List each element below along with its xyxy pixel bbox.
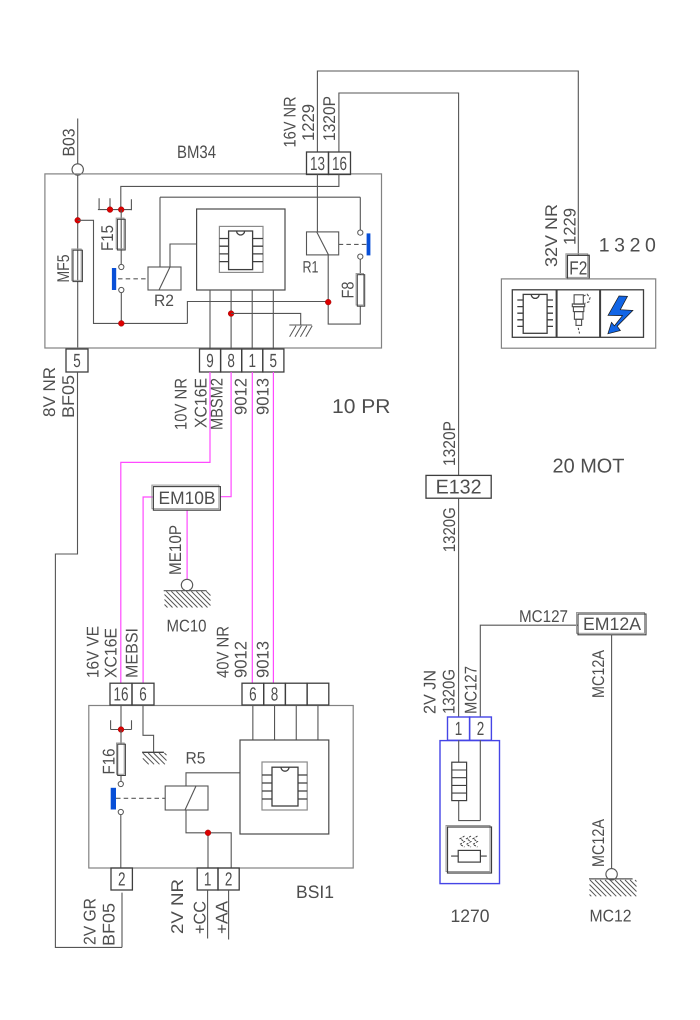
svg-text:2: 2 bbox=[225, 870, 233, 891]
svg-text:2V NR: 2V NR bbox=[168, 879, 187, 934]
svg-text:1229: 1229 bbox=[561, 208, 580, 245]
svg-text:10 PR: 10 PR bbox=[332, 396, 391, 418]
svg-text:F8: F8 bbox=[339, 282, 358, 299]
svg-text:MC12: MC12 bbox=[590, 907, 632, 926]
svg-text:+AA: +AA bbox=[213, 900, 232, 934]
svg-text:BM34: BM34 bbox=[177, 142, 216, 162]
svg-text:8: 8 bbox=[227, 351, 235, 372]
svg-text:EM12A: EM12A bbox=[583, 614, 641, 634]
svg-text:9013: 9013 bbox=[253, 378, 272, 415]
svg-text:6: 6 bbox=[249, 685, 257, 706]
svg-text:MF5: MF5 bbox=[54, 255, 73, 283]
svg-text:MC127: MC127 bbox=[462, 666, 481, 714]
svg-text:5: 5 bbox=[270, 351, 278, 372]
svg-text:1320: 1320 bbox=[599, 235, 661, 257]
svg-text:MC127: MC127 bbox=[519, 607, 568, 626]
svg-text:R5: R5 bbox=[186, 750, 206, 768]
svg-text:1: 1 bbox=[248, 351, 256, 372]
svg-text:13: 13 bbox=[310, 154, 325, 175]
svg-text:16: 16 bbox=[332, 154, 347, 175]
svg-text:1320G: 1320G bbox=[440, 507, 459, 552]
svg-text:+CC: +CC bbox=[191, 901, 210, 934]
svg-text:20 MOT: 20 MOT bbox=[553, 456, 625, 478]
svg-text:9013: 9013 bbox=[254, 641, 273, 678]
svg-text:2V JN: 2V JN bbox=[421, 670, 440, 714]
svg-text:R2: R2 bbox=[154, 292, 174, 310]
svg-text:2V GR: 2V GR bbox=[81, 898, 100, 945]
svg-text:40V NR: 40V NR bbox=[214, 626, 233, 678]
svg-text:16V NR: 16V NR bbox=[281, 97, 300, 148]
svg-text:32V NR: 32V NR bbox=[542, 204, 561, 267]
svg-text:F16: F16 bbox=[100, 749, 119, 775]
svg-text:R1: R1 bbox=[303, 259, 319, 277]
svg-text:F15: F15 bbox=[98, 225, 117, 251]
svg-text:XC16E: XC16E bbox=[102, 628, 121, 678]
svg-text:1320P: 1320P bbox=[320, 96, 339, 141]
svg-text:2: 2 bbox=[118, 870, 126, 891]
svg-text:8V NR: 8V NR bbox=[40, 367, 59, 417]
svg-text:1270: 1270 bbox=[451, 906, 490, 926]
svg-text:BF05: BF05 bbox=[59, 375, 78, 418]
svg-text:MEBSI: MEBSI bbox=[123, 628, 142, 678]
svg-text:16V VE: 16V VE bbox=[84, 626, 103, 678]
svg-text:9012: 9012 bbox=[231, 378, 250, 415]
svg-text:6: 6 bbox=[139, 685, 147, 706]
svg-text:ME10P: ME10P bbox=[166, 525, 185, 575]
svg-text:5: 5 bbox=[73, 351, 81, 372]
svg-text:EM10B: EM10B bbox=[159, 488, 216, 508]
svg-text:2: 2 bbox=[477, 719, 485, 740]
svg-text:F2: F2 bbox=[569, 259, 587, 280]
svg-text:10V NR: 10V NR bbox=[171, 378, 190, 430]
svg-text:1320G: 1320G bbox=[440, 669, 459, 714]
svg-text:MC12A: MC12A bbox=[589, 818, 608, 867]
svg-text:MC12A: MC12A bbox=[589, 649, 608, 698]
svg-text:B03: B03 bbox=[60, 129, 79, 157]
svg-text:1: 1 bbox=[204, 870, 212, 891]
svg-text:9: 9 bbox=[206, 351, 214, 372]
svg-text:MC10: MC10 bbox=[167, 617, 207, 636]
svg-text:BF05: BF05 bbox=[100, 903, 119, 946]
svg-text:1229: 1229 bbox=[299, 104, 318, 141]
svg-text:E132: E132 bbox=[436, 477, 482, 499]
svg-text:9012: 9012 bbox=[232, 641, 251, 678]
svg-text:BSI1: BSI1 bbox=[296, 882, 334, 902]
svg-text:8: 8 bbox=[271, 685, 279, 706]
svg-text:1320P: 1320P bbox=[440, 421, 459, 466]
svg-text:1: 1 bbox=[455, 719, 463, 740]
svg-text:16: 16 bbox=[114, 685, 129, 706]
